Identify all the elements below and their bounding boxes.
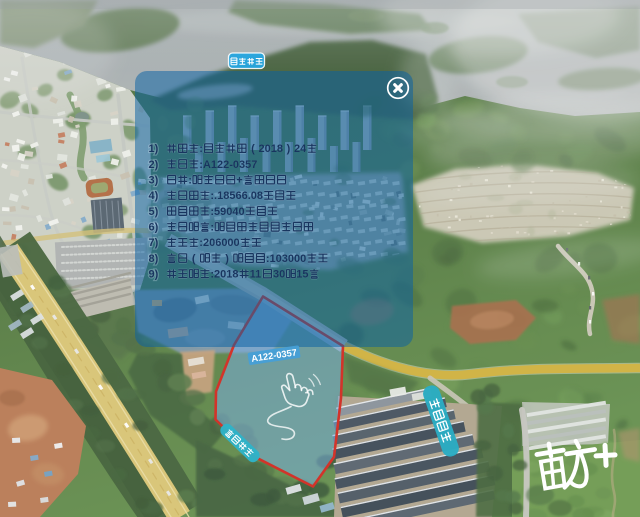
svg-text::2018: :2018 xyxy=(210,269,238,281)
svg-text:2018: 2018 xyxy=(259,143,283,155)
svg-text:15: 15 xyxy=(296,269,308,281)
svg-text:30: 30 xyxy=(273,269,285,281)
svg-text::: : xyxy=(199,143,203,155)
svg-text:11: 11 xyxy=(250,269,262,281)
svg-text:(: ( xyxy=(192,253,196,265)
svg-text::59040: :59040 xyxy=(210,206,244,218)
svg-text:7): 7) xyxy=(149,237,159,249)
svg-text::206000: :206000 xyxy=(199,237,239,249)
svg-text:24: 24 xyxy=(294,143,307,155)
svg-text::103000: :103000 xyxy=(266,253,306,265)
svg-text:3): 3) xyxy=(149,175,159,187)
svg-text:1): 1) xyxy=(149,143,159,155)
svg-text:6): 6) xyxy=(149,222,159,234)
svg-text:5): 5) xyxy=(149,206,159,218)
svg-text:): ) xyxy=(287,143,291,155)
svg-text:): ) xyxy=(225,253,229,265)
svg-text:(: ( xyxy=(251,143,255,155)
svg-text:2): 2) xyxy=(149,159,159,171)
svg-text:+: + xyxy=(236,175,242,187)
svg-text:4): 4) xyxy=(149,190,159,202)
svg-text:9): 9) xyxy=(149,269,159,281)
svg-text::.18566.08: :.18566.08 xyxy=(210,190,263,202)
svg-text::A122-0357: :A122-0357 xyxy=(199,159,257,171)
svg-text::: : xyxy=(188,175,192,187)
svg-text::: : xyxy=(210,222,214,234)
svg-text:8): 8) xyxy=(149,253,159,265)
